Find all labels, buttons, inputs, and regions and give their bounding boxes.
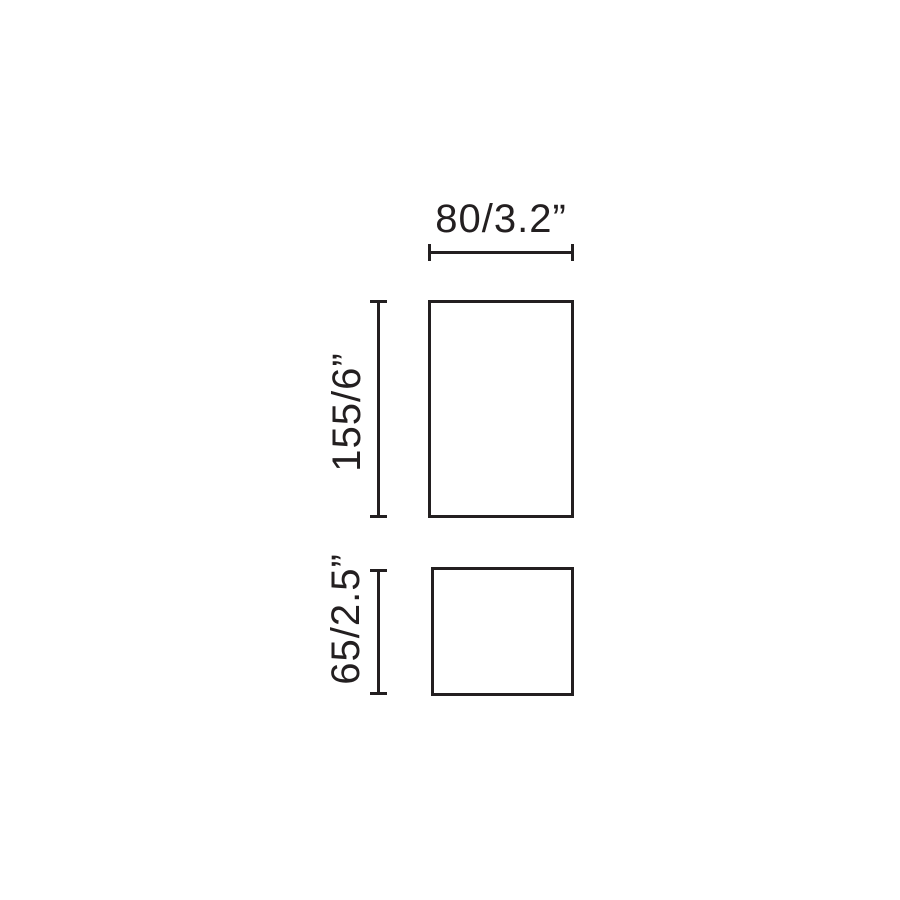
- dimension-end-cap-bottom: [370, 515, 387, 518]
- dimension-end-cap-bottom: [370, 692, 387, 695]
- body-height-dimension-label: 155/6”: [327, 352, 367, 471]
- dimension-end-cap-left: [428, 244, 431, 261]
- dimension-end-cap-right: [571, 244, 574, 261]
- base-height-dimension-line: [377, 569, 380, 695]
- dimension-end-cap-top: [370, 300, 387, 303]
- width-dimension-label: 80/3.2”: [435, 199, 567, 239]
- body-height-dimension-line: [377, 300, 380, 518]
- product-body-outline: [428, 300, 574, 518]
- width-dimension-line: [428, 251, 574, 254]
- dimension-drawing-canvas: 80/3.2” 155/6” 65/2.5”: [0, 0, 900, 900]
- dimension-end-cap-top: [370, 569, 387, 572]
- product-base-outline: [431, 567, 574, 696]
- base-height-dimension-label: 65/2.5”: [326, 553, 366, 685]
